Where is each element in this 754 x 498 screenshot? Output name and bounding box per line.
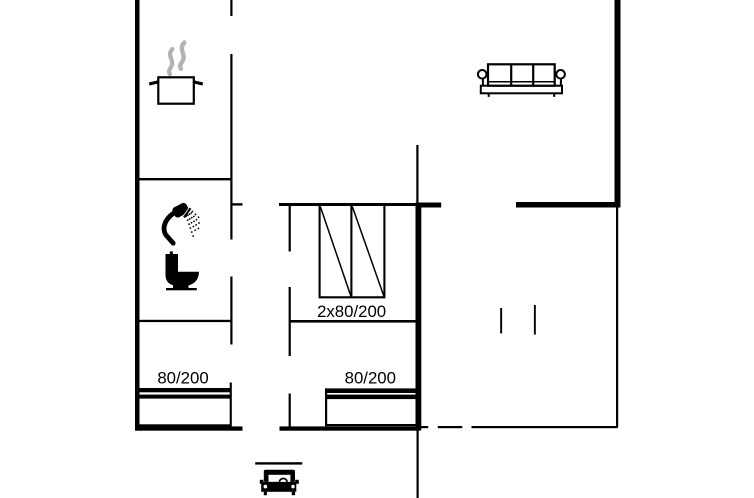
svg-text:80/200: 80/200 [157,369,208,388]
svg-text:80/200: 80/200 [345,369,396,388]
svg-text:2x80/200: 2x80/200 [317,302,386,321]
